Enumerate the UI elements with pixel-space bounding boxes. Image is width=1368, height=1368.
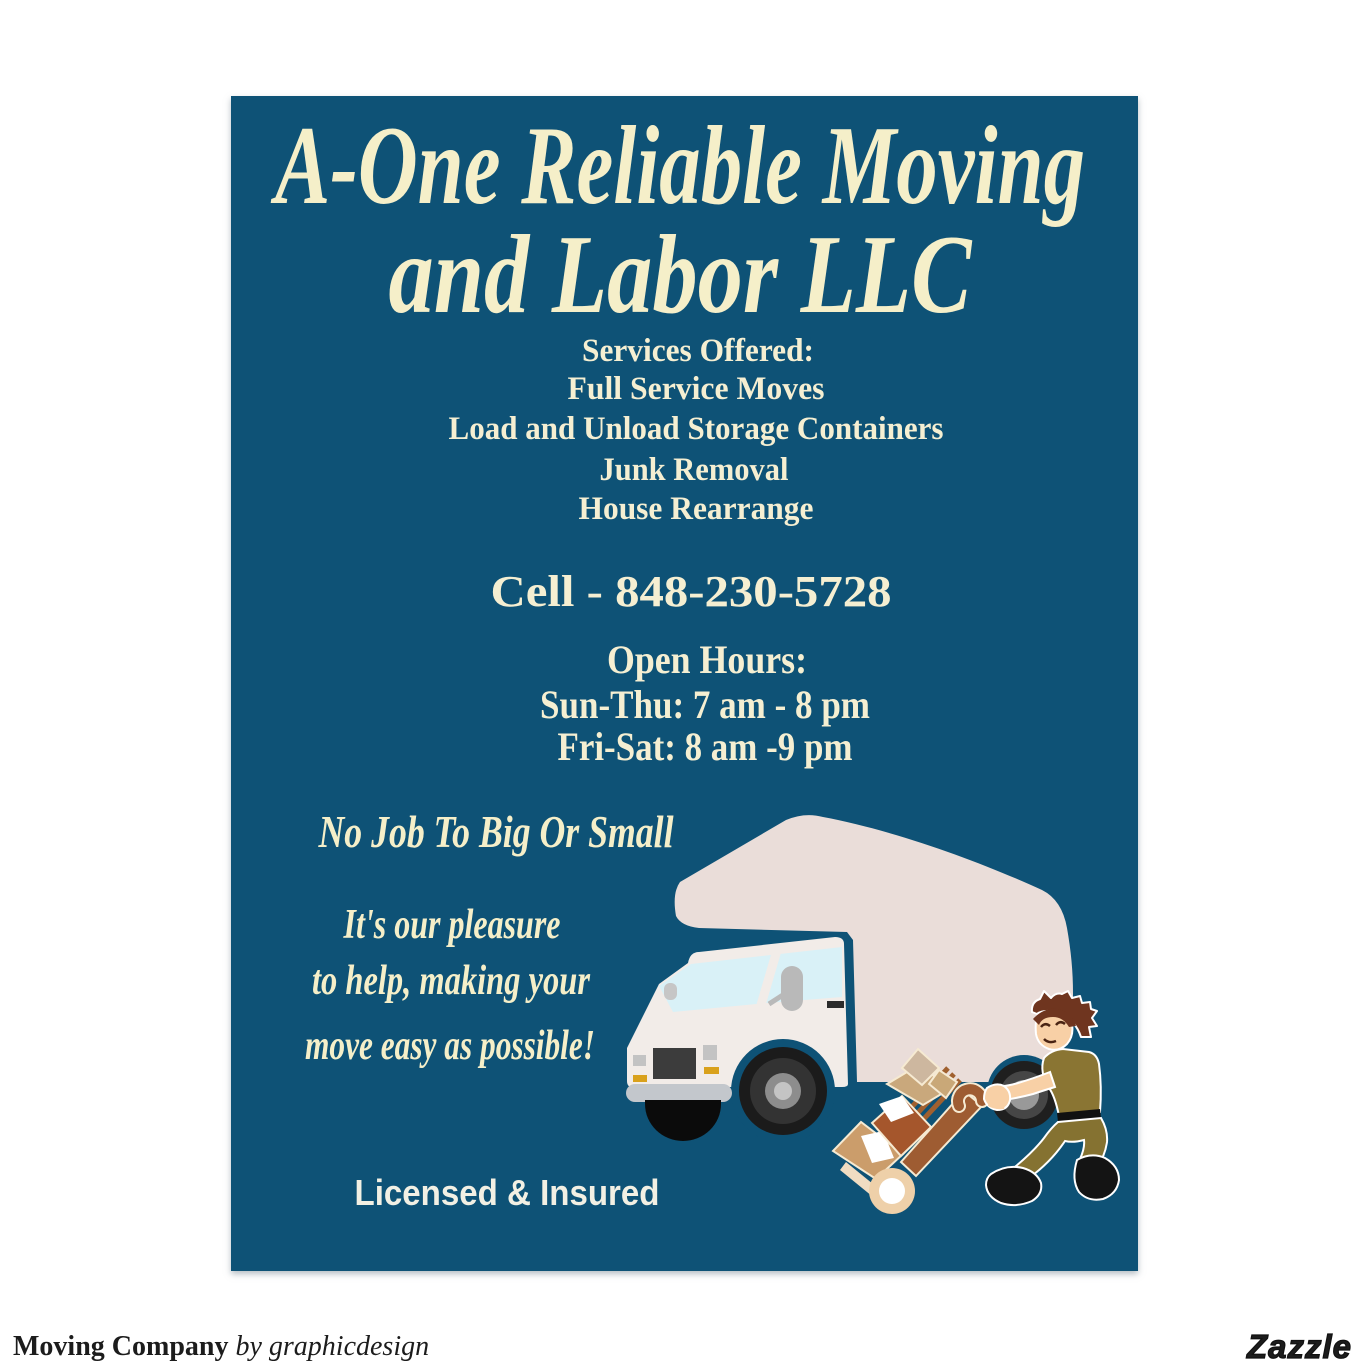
svg-text:and Labor LLC: and Labor LLC — [389, 213, 973, 337]
svg-text:Fri-Sat: 8 am -9 pm: Fri-Sat: 8 am -9 pm — [558, 724, 853, 769]
svg-text:House Rearrange: House Rearrange — [579, 491, 814, 527]
svg-text:Sun-Thu: 7 am - 8 pm: Sun-Thu: 7 am - 8 pm — [540, 682, 870, 727]
svg-text:to help, making your: to help, making your — [312, 958, 590, 1004]
svg-text:move easy as possible!: move easy as possible! — [305, 1023, 595, 1069]
svg-text:Open Hours:: Open Hours: — [607, 637, 807, 682]
svg-text:Licensed & Insured: Licensed & Insured — [355, 1172, 660, 1213]
svg-text:Services Offered:: Services Offered: — [582, 333, 814, 369]
svg-text:Load and Unload Storage Contai: Load and Unload Storage Containers — [449, 411, 944, 447]
svg-text:Junk Removal: Junk Removal — [600, 452, 789, 488]
svg-text:Full Service Moves: Full Service Moves — [568, 371, 825, 407]
svg-text:Cell - 848-230-5728: Cell - 848-230-5728 — [491, 567, 892, 616]
svg-text:No Job To Big Or Small: No Job To Big Or Small — [318, 806, 674, 857]
svg-text:It's our pleasure: It's our pleasure — [343, 902, 561, 948]
svg-text:A-One Reliable Moving: A-One Reliable Moving — [271, 104, 1085, 228]
